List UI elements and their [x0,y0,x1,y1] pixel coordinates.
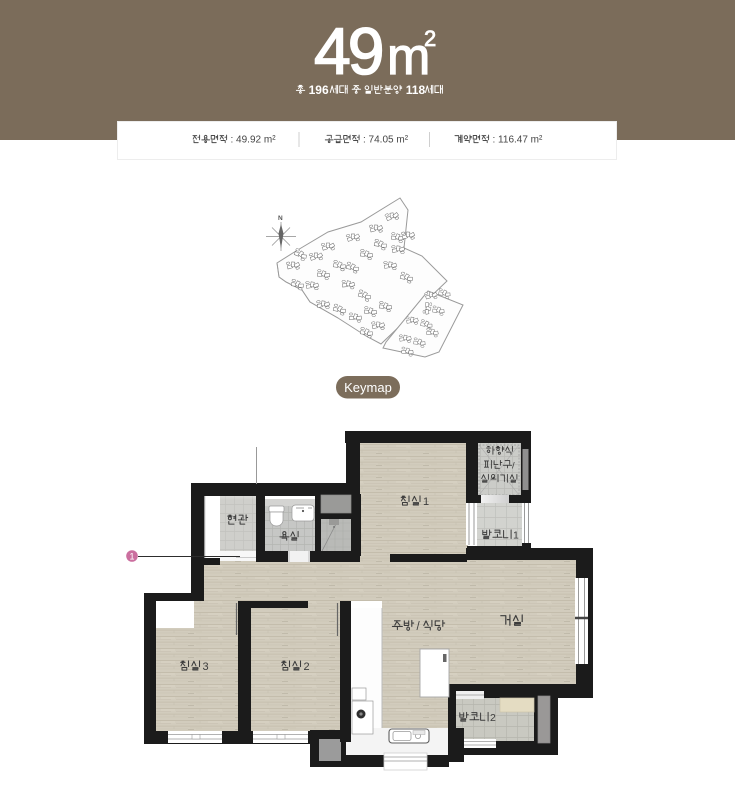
svg-text:Keymap: Keymap [344,380,392,395]
svg-text:1: 1 [423,496,429,508]
svg-text:118: 118 [406,83,426,97]
svg-text:1: 1 [129,551,134,561]
svg-text:49: 49 [314,14,382,88]
svg-text:N: N [278,215,283,222]
svg-text:2: 2 [304,661,310,673]
svg-text:: 74.05 m²: : 74.05 m² [363,135,409,146]
svg-text:: 49.92 m²: : 49.92 m² [231,135,277,146]
svg-text:3: 3 [203,661,209,673]
svg-text:2: 2 [424,26,436,51]
svg-text:/: / [512,461,515,472]
svg-text:196: 196 [309,83,329,97]
svg-text:: 116.47 m²: : 116.47 m² [493,135,544,146]
svg-text:2: 2 [490,712,496,724]
svg-text:1: 1 [513,530,519,542]
